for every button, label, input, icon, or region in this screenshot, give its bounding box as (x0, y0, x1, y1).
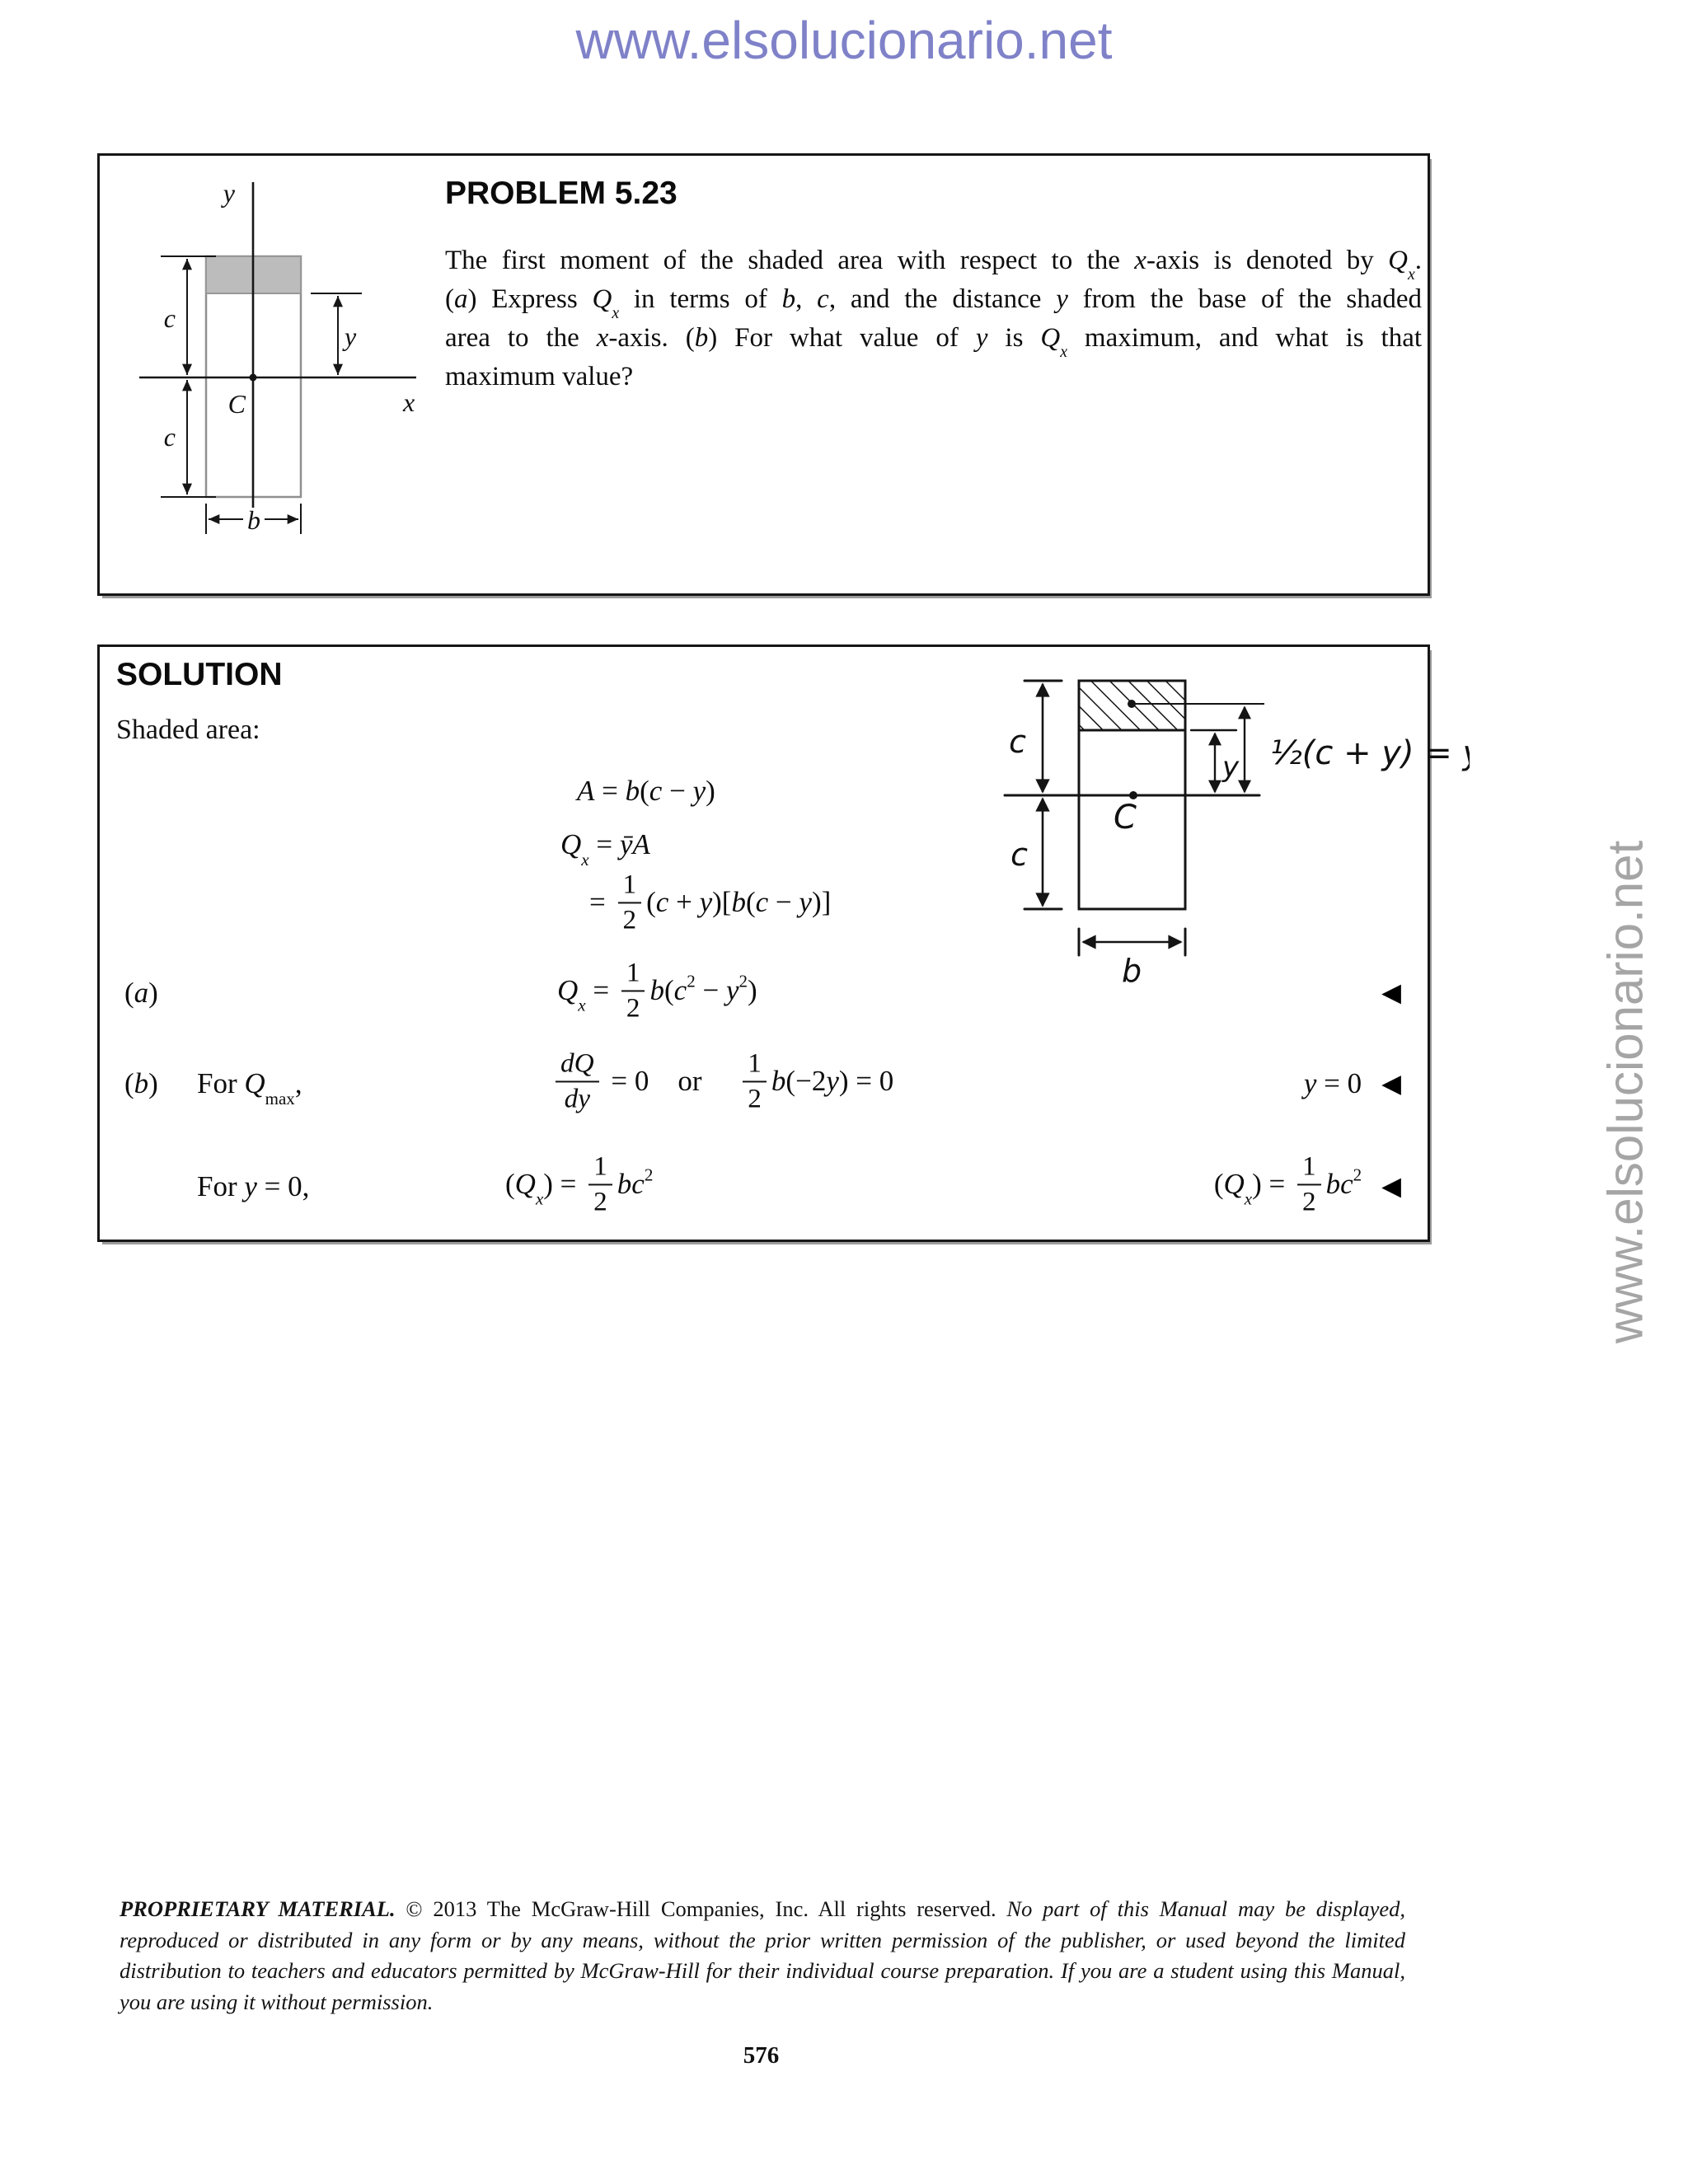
problem-body-line: The first moment of the shaded area with… (445, 241, 1422, 280)
copyright-line: you are using it without permission. (120, 1987, 1405, 2018)
part-b-label: (b) (124, 1067, 158, 1100)
copyright-line: reproduced or distributed in any form or… (120, 1925, 1405, 1957)
part-b-answer-group: y = 0 ◀ (1304, 1067, 1401, 1100)
solution-box: SOLUTION Shaded area: c c C (97, 644, 1430, 1242)
problem-title: PROBLEM 5.23 (445, 176, 678, 212)
b-dim-label: b (247, 505, 260, 535)
equation-qx: Qx = ȳA (560, 828, 650, 861)
part-b-condition: For Qmax, (197, 1067, 302, 1100)
part-b2-condition: For y = 0, (197, 1170, 309, 1203)
hand-ybar-note: ½(c + y) = ȳ (1270, 734, 1470, 772)
problem-statement-box: y x C c c y b PROBLEM 5.23 The first (97, 153, 1430, 596)
shaded-area-label: Shaded area: (116, 715, 260, 746)
c-bottom-label: c (164, 422, 176, 452)
manual-page: www.elsolucionario.net www.elsolucionari… (0, 0, 1688, 2184)
y-axis-label: y (221, 178, 236, 208)
problem-body: The first moment of the shaded area with… (445, 241, 1422, 396)
answer-marker-icon: ◀ (1381, 1071, 1401, 1097)
equation-qx-expanded: = 12(c + y)[b(c − y)] (589, 872, 831, 937)
solution-hand-figure: c c C y ½(c + y) = ȳ b (983, 649, 1470, 1003)
centroid-dot (250, 374, 257, 382)
copyright-notice: PROPRIETARY MATERIAL. © 2013 The McGraw-… (120, 1894, 1405, 2018)
part-b-answer: y = 0 (1304, 1067, 1362, 1100)
part-a-equation: Qx = 12b(c2 − y2) (557, 960, 757, 1025)
site-url-watermark-vertical: www.elsolucionario.net (1597, 841, 1654, 1343)
hand-b-dim-label: b (1122, 953, 1142, 989)
answer-marker-icon: ◀ (1381, 1174, 1401, 1200)
hand-c-bottom-label: c (1010, 837, 1028, 873)
problem-body-line: maximum value? (445, 358, 1422, 396)
problem-body-line: area to the x-axis. (b) For what value o… (445, 319, 1422, 358)
hand-c-top-label: c (1009, 724, 1026, 760)
page-number: 576 (97, 2042, 1425, 2069)
problem-body-line: (a) Express Qx in terms of b, c, and the… (445, 280, 1422, 319)
centroid-label: C (228, 389, 246, 419)
site-url-header: www.elsolucionario.net (0, 10, 1688, 71)
part-a-answer-group: ◀ (1381, 981, 1401, 1006)
part-b2-answer: (Qx) = 12bc2 (1214, 1154, 1362, 1219)
problem-figure: y x C c c y b (138, 174, 434, 543)
equation-area: A = b(c − y) (577, 775, 715, 808)
copyright-line: PROPRIETARY MATERIAL. © 2013 The McGraw-… (120, 1894, 1405, 1925)
copyright-line: distribution to teachers and educators p… (120, 1956, 1405, 1987)
hand-centroid-label: C (1114, 799, 1137, 837)
part-a-label: (a) (124, 977, 158, 1010)
part-b2-answer-group: (Qx) = 12bc2 ◀ (1214, 1154, 1401, 1219)
hand-y-dim-label: y (1221, 751, 1240, 784)
part-b-equation: dQdy = 0 or 12b(−2y) = 0 (551, 1051, 893, 1116)
answer-marker-icon: ◀ (1381, 978, 1401, 1008)
x-axis-label: x (402, 387, 415, 417)
solution-heading: SOLUTION (116, 657, 283, 693)
part-b2-equation: (Qx) = 12bc2 (505, 1154, 653, 1219)
c-top-label: c (164, 303, 176, 333)
y-dim-label: y (342, 321, 357, 351)
